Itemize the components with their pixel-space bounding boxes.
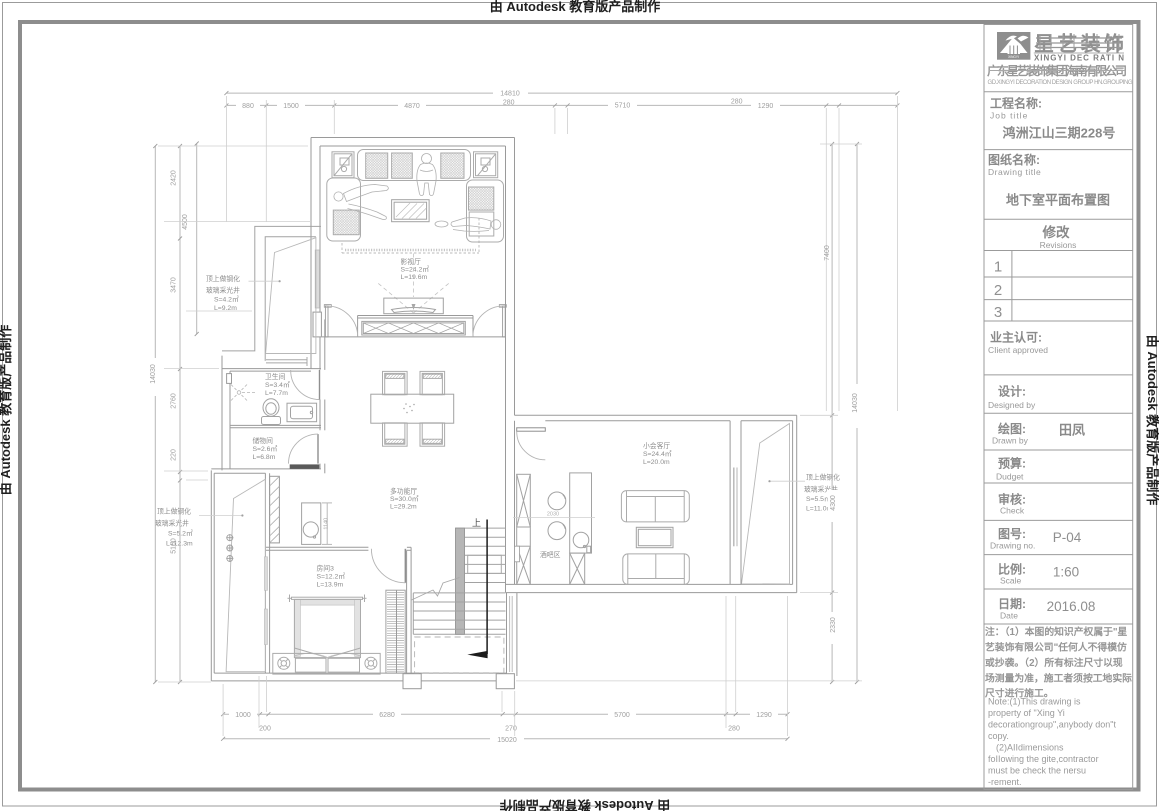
svg-text:酒吧区: 酒吧区 bbox=[540, 551, 561, 559]
svg-text:鸿洲江山三期228号: 鸿洲江山三期228号 bbox=[1003, 126, 1116, 141]
svg-text:卫生间: 卫生间 bbox=[265, 372, 286, 381]
svg-text:1290: 1290 bbox=[758, 103, 774, 110]
svg-text:Drawing title: Drawing title bbox=[988, 167, 1041, 177]
svg-text:4870: 4870 bbox=[404, 103, 420, 110]
svg-text:Job title: Job title bbox=[990, 111, 1028, 121]
svg-text:1:60: 1:60 bbox=[1053, 565, 1079, 580]
svg-text:3470: 3470 bbox=[171, 277, 178, 293]
svg-text:S=12.2㎡: S=12.2㎡ bbox=[317, 572, 346, 581]
svg-text:S=3.4㎡: S=3.4㎡ bbox=[265, 380, 290, 389]
svg-text:田凤: 田凤 bbox=[1059, 423, 1085, 438]
svg-text:220: 220 bbox=[171, 449, 178, 461]
svg-text:15020: 15020 bbox=[497, 737, 517, 744]
svg-text:工程名称:: 工程名称: bbox=[990, 96, 1042, 111]
svg-text:L=6.8m: L=6.8m bbox=[253, 454, 276, 461]
svg-text:14030: 14030 bbox=[852, 393, 859, 413]
svg-text:储物间: 储物间 bbox=[253, 436, 274, 445]
svg-text:或抄袭。（2）所有标注尺寸以现: 或抄袭。（2）所有标注尺寸以现 bbox=[985, 656, 1123, 669]
svg-text:6280: 6280 bbox=[379, 712, 395, 719]
svg-text:L=7.7m: L=7.7m bbox=[265, 390, 288, 397]
svg-text:14810: 14810 bbox=[500, 91, 520, 98]
svg-text:修改: 修改 bbox=[1042, 224, 1071, 240]
svg-text:Drawn by: Drawn by bbox=[992, 436, 1029, 446]
svg-text:L=29.2m: L=29.2m bbox=[390, 504, 417, 511]
svg-text:Drawing no.: Drawing no. bbox=[990, 541, 1035, 551]
svg-text:foIIowing the gite,contractor: foIIowing the gite,contractor bbox=[988, 754, 1099, 764]
svg-text:CIient approved: CIient approved bbox=[988, 345, 1048, 355]
svg-text:顶上做钢化: 顶上做钢化 bbox=[806, 473, 840, 482]
svg-text:280: 280 bbox=[728, 726, 740, 733]
svg-text:4300: 4300 bbox=[830, 495, 837, 511]
svg-text:XINGYI DEC RATI N: XINGYI DEC RATI N bbox=[1034, 53, 1124, 62]
svg-text:场测量为准，施工者须按工地实际: 场测量为准，施工者须按工地实际 bbox=[985, 672, 1132, 685]
svg-text:S=2.6㎡: S=2.6㎡ bbox=[253, 444, 278, 453]
svg-text:S=30.0㎡: S=30.0㎡ bbox=[390, 494, 419, 503]
svg-text:影视厅: 影视厅 bbox=[401, 257, 422, 266]
svg-text:5160: 5160 bbox=[171, 538, 178, 554]
svg-text:property of "Xing Yi: property of "Xing Yi bbox=[988, 708, 1065, 718]
svg-text:2016.08: 2016.08 bbox=[1047, 599, 1096, 614]
svg-text:4500: 4500 bbox=[182, 214, 189, 230]
svg-text:1: 1 bbox=[994, 259, 1002, 276]
svg-text:比例:: 比例: bbox=[998, 562, 1026, 577]
svg-text:must be check the nersu: must be check the nersu bbox=[988, 766, 1086, 776]
svg-text:(2)AIIdimensions: (2)AIIdimensions bbox=[996, 743, 1064, 753]
svg-text:顶上做钢化: 顶上做钢化 bbox=[206, 274, 240, 283]
svg-text:7400: 7400 bbox=[824, 245, 831, 261]
svg-text:Date: Date bbox=[1000, 611, 1018, 621]
svg-text:S=24.2㎡: S=24.2㎡ bbox=[401, 265, 430, 274]
svg-text:玻璃采光井: 玻璃采光井 bbox=[155, 519, 189, 528]
svg-text:1000: 1000 bbox=[235, 712, 251, 719]
svg-text:GD.XINGYI DECORATION DESIGN GR: GD.XINGYI DECORATION DESIGN GROUP HN.GRO… bbox=[988, 80, 1133, 86]
svg-text:Designed by: Designed by bbox=[988, 400, 1036, 410]
svg-text:XINGYI: XINGYI bbox=[1008, 55, 1019, 59]
svg-text:2030: 2030 bbox=[547, 512, 559, 518]
svg-text:审核:: 审核: bbox=[998, 492, 1026, 507]
svg-text:1290: 1290 bbox=[756, 712, 772, 719]
svg-text:S=4.2㎡: S=4.2㎡ bbox=[214, 295, 239, 304]
svg-text:P-04: P-04 bbox=[1053, 530, 1082, 545]
svg-text:200: 200 bbox=[259, 726, 271, 733]
svg-text:270: 270 bbox=[505, 726, 517, 733]
svg-text:玻璃采光井: 玻璃采光井 bbox=[206, 286, 240, 295]
svg-text:copy.: copy. bbox=[988, 731, 1009, 741]
svg-text:由 Autodesk 教育版产品制作: 由 Autodesk 教育版产品制作 bbox=[500, 798, 670, 811]
svg-text:日期:: 日期: bbox=[998, 596, 1026, 611]
svg-text:由 Autodesk 教育版产品制作: 由 Autodesk 教育版产品制作 bbox=[1145, 335, 1159, 505]
svg-text:上: 上 bbox=[472, 518, 481, 528]
svg-text:14030: 14030 bbox=[150, 364, 157, 384]
svg-text:房间3: 房间3 bbox=[317, 564, 335, 573]
svg-text:艺装饰有限公司"任何人不得模仿: 艺装饰有限公司"任何人不得模仿 bbox=[985, 641, 1127, 654]
svg-text:小会客厅: 小会客厅 bbox=[643, 441, 670, 450]
svg-text:880: 880 bbox=[242, 103, 254, 110]
svg-text:S=24.4㎡: S=24.4㎡ bbox=[643, 449, 672, 458]
svg-text:5710: 5710 bbox=[615, 103, 631, 110]
svg-text:注：（1）本图的知识产权属于"星: 注：（1）本图的知识产权属于"星 bbox=[985, 625, 1128, 638]
svg-text:Scale: Scale bbox=[1000, 576, 1022, 586]
svg-text:绘图:: 绘图: bbox=[998, 421, 1026, 436]
svg-text:Revisions: Revisions bbox=[1040, 240, 1077, 250]
svg-text:顶上做钢化: 顶上做钢化 bbox=[157, 507, 191, 516]
svg-text:由 Autodesk 教育版产品制作: 由 Autodesk 教育版产品制作 bbox=[0, 325, 13, 495]
svg-text:2420: 2420 bbox=[171, 170, 178, 186]
svg-text:2330: 2330 bbox=[830, 617, 837, 633]
svg-text:2: 2 bbox=[994, 282, 1002, 299]
svg-text:Note:(1)This drawing is: Note:(1)This drawing is bbox=[988, 697, 1081, 707]
svg-text:280: 280 bbox=[503, 100, 515, 107]
svg-text:L=13.9m: L=13.9m bbox=[317, 582, 344, 589]
svg-text:2760: 2760 bbox=[171, 393, 178, 409]
svg-text:图纸名称:: 图纸名称: bbox=[988, 152, 1040, 167]
svg-text:设计:: 设计: bbox=[998, 384, 1026, 399]
svg-text:1500: 1500 bbox=[283, 103, 299, 110]
svg-text:业主认可:: 业主认可: bbox=[990, 330, 1042, 345]
svg-text:L=20.0m: L=20.0m bbox=[643, 459, 670, 466]
svg-text:-rement.: -rement. bbox=[988, 777, 1022, 787]
svg-text:Dudget: Dudget bbox=[996, 472, 1024, 482]
svg-text:decorationgroup",anybody don"t: decorationgroup",anybody don"t bbox=[988, 720, 1116, 730]
svg-text:地下室平面布置图: 地下室平面布置图 bbox=[1006, 193, 1110, 208]
svg-text:多功能厅: 多功能厅 bbox=[390, 487, 417, 496]
svg-text:5700: 5700 bbox=[614, 712, 630, 719]
svg-text:图号:: 图号: bbox=[998, 526, 1026, 541]
svg-text:由 Autodesk 教育版产品制作: 由 Autodesk 教育版产品制作 bbox=[490, 0, 660, 14]
svg-text:Check: Check bbox=[1000, 506, 1025, 516]
svg-text:280: 280 bbox=[731, 99, 743, 106]
svg-text:1140: 1140 bbox=[323, 518, 329, 530]
svg-text:预算:: 预算: bbox=[998, 456, 1026, 471]
svg-text:L=19.6m: L=19.6m bbox=[401, 274, 428, 281]
svg-text:3: 3 bbox=[994, 304, 1002, 321]
svg-text:S=5.5㎡: S=5.5㎡ bbox=[806, 494, 831, 503]
